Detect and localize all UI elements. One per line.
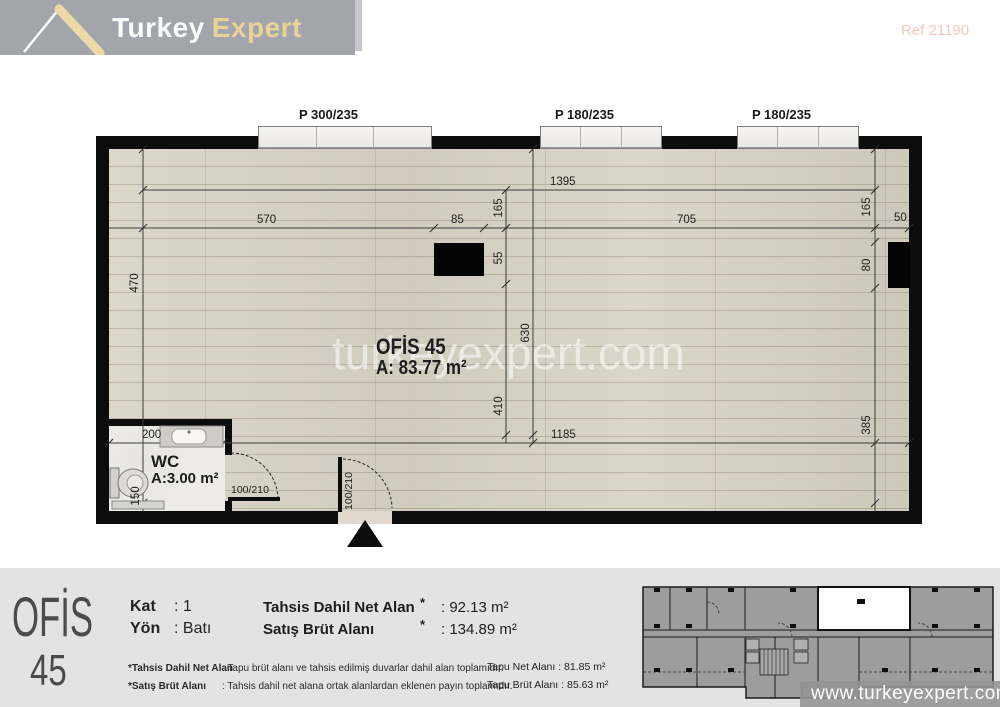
tapu-net-line: Tapu Net Alanı : 81.85 m² [487, 661, 606, 673]
window-p180-b [737, 126, 859, 149]
wc-area: A:3.00 m² [151, 470, 219, 487]
window-label: P 300/235 [299, 107, 358, 122]
window-p300 [258, 126, 432, 149]
dim-55: 55 [493, 238, 505, 278]
website-url: www.turkeyexpert.com [811, 683, 1000, 705]
wc-name: WC [151, 452, 179, 472]
window-label: P 180/235 [752, 107, 811, 122]
window-pane [317, 127, 375, 148]
window-label: P 180/235 [555, 107, 614, 122]
dim-200: 200 [142, 429, 161, 441]
window-pane [259, 127, 317, 148]
dim-470: 470 [129, 263, 141, 303]
window-pane [581, 127, 621, 148]
footnote1-label: *Tahsis Dahil Net Alan [128, 663, 233, 674]
reference-number: Ref 21190 [901, 22, 969, 39]
logo-mountain-icon [0, 0, 110, 55]
dim-385: 385 [861, 405, 873, 445]
dim-165-right: 165 [861, 187, 873, 227]
window-pane [738, 127, 778, 148]
floorplan-page: TurkeyExpert Ref 21190 P 300/235 P 180/2… [0, 0, 1000, 707]
brand-first: Turkey [112, 12, 205, 43]
net-area-label: Tahsis Dahil Net Alan [263, 599, 415, 616]
dim-150: 150 [130, 476, 142, 516]
direction-value: : Batı [174, 620, 211, 638]
footnote2-label: *Satış Brüt Alanı [128, 681, 206, 692]
window-p180-a [540, 126, 662, 149]
tapu-net-label: Tapu Net Alanı [487, 661, 555, 673]
floor-label: Kat [130, 598, 156, 616]
footnote1-text: : Tapu brüt alanı ve tahsis edilmiş duva… [222, 663, 504, 674]
dim-85: 85 [451, 214, 464, 226]
dim-410: 410 [493, 386, 505, 426]
entrance-door-opening [338, 511, 392, 524]
footnote2-text: : Tahsis dahil net alana ortak alanlarda… [222, 681, 513, 692]
window-pane [541, 127, 581, 148]
tapu-gross-label: Tapu Brüt Alanı [487, 679, 558, 691]
tapu-gross-value: : 85.63 m² [561, 679, 608, 691]
window-pane [819, 127, 858, 148]
unit-type-big: OFİS [12, 584, 93, 649]
direction-label: Yön [130, 620, 160, 638]
net-area-value: : 92.13 m² [441, 599, 509, 616]
wc-wall-right-lower [225, 501, 232, 511]
gross-area-star: * [420, 617, 425, 632]
floor-value: : 1 [174, 598, 192, 616]
wc-wall-right-upper [225, 419, 232, 455]
gross-area-value: : 134.89 m² [441, 621, 517, 638]
dim-705: 705 [677, 214, 696, 226]
dim-570: 570 [257, 214, 276, 226]
dim-1185: 1185 [551, 429, 576, 441]
wc-door-size-label: 100/210 [231, 484, 269, 496]
dim-80: 80 [861, 245, 873, 285]
entrance-arrow-icon [347, 520, 383, 547]
entrance-door-size-label: 100/210 [343, 471, 355, 511]
net-area-star: * [420, 595, 425, 610]
key-plan-highlighted-unit [818, 587, 910, 630]
dim-1395: 1395 [550, 176, 576, 188]
tapu-net-value: : 81.85 m² [558, 661, 605, 673]
header-bar-step [355, 0, 362, 51]
window-pane [374, 127, 431, 148]
brand-logo-text: TurkeyExpert [112, 12, 302, 44]
dim-50: 50 [894, 212, 907, 224]
gross-area-label: Satış Brüt Alanı [263, 621, 374, 638]
unit-number-big: 45 [30, 646, 67, 696]
room-area: A: 83.77 m² [376, 357, 467, 380]
dim-630: 630 [520, 313, 532, 353]
window-pane [778, 127, 818, 148]
tapu-gross-line: Tapu Brüt Alanı : 85.63 m² [487, 679, 608, 691]
dim-165-mid: 165 [493, 188, 505, 228]
brand-second: Expert [212, 12, 302, 43]
window-pane [622, 127, 661, 148]
wc-wall-top [109, 419, 232, 426]
